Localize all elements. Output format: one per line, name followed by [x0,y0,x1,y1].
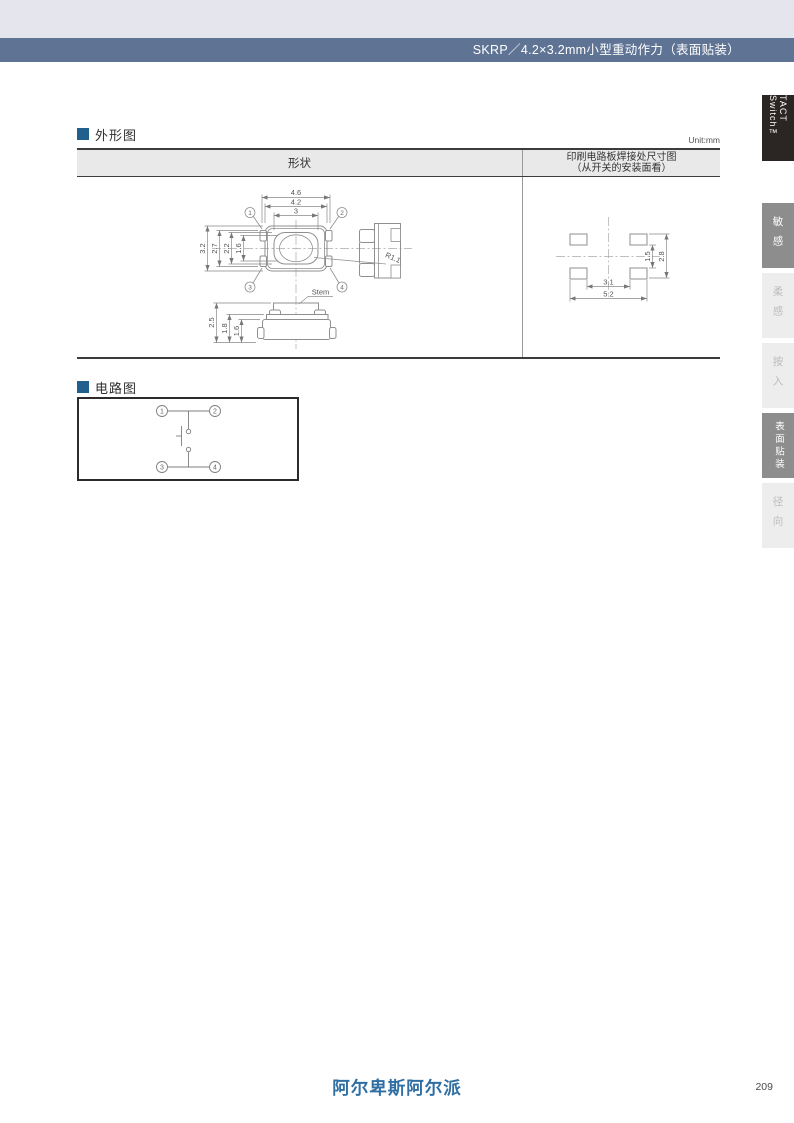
circuit-terminal-2: 2 [213,409,217,416]
terminal-pad [326,231,333,242]
side-terminal [360,230,375,243]
dim-label-16: 1.6 [234,243,243,253]
side-tab-soft: 柔感 [762,273,794,338]
circuit-box: 1 2 3 4 [77,397,299,481]
front-lead [258,328,265,339]
front-view-drawing [258,296,337,349]
col-header-pcb-line2: （从开关的安装面看） [572,163,672,175]
side-tab-label: 表面贴装 [771,421,785,471]
dim-label-27: 2.7 [210,243,219,253]
terminal-number-2: 2 [340,210,344,217]
dim-label-3: 3 [294,207,298,216]
side-tab-label: 径向 [771,496,786,535]
side-notch [391,265,401,278]
dim-label-radius: R1.1 [384,250,402,265]
dim-label-28: 2.8 [657,251,666,261]
pcb-pad [630,234,647,245]
dim-label-16b: 1.6 [232,326,241,336]
dim-label-25: 2.5 [207,317,216,327]
side-view-drawing [360,224,401,279]
side-tab-sensitive: 敏感 [762,203,794,268]
col-header-shape: 形状 [77,150,522,176]
footer-logo: 阿尔卑斯阿尔派 [0,1075,794,1100]
dim-label-31: 3.1 [603,278,613,287]
page-number: 209 [755,1081,773,1093]
unit-label: Unit:mm [77,135,720,145]
outline-drawing-svg: R1.1 4.6 4.2 3 [77,177,720,357]
stem-label: Stem [312,288,330,297]
col-header-pcb-line1: 印刷电路板焊接处尺寸图 [567,152,677,164]
circuit-terminal-1: 1 [160,409,164,416]
table-body-row: R1.1 4.6 4.2 3 [77,177,720,357]
pcb-pad [630,268,647,279]
datasheet-page: SKRP／4.2×3.2mm小型重动作力（表面贴装） TACT Switch™ … [0,0,794,1123]
contact-point [186,429,190,433]
dim-label-52: 5.2 [603,290,613,299]
side-tab-push: 按入 [762,343,794,408]
terminal-pad [326,256,333,267]
dim-label-15: 1.5 [643,251,652,261]
contact-point [186,447,190,451]
side-terminal [360,264,375,277]
circuit-section-title: 电路图 [95,378,137,397]
front-body [263,320,331,340]
top-strip [0,0,794,38]
terminal-number-3: 3 [248,285,252,292]
terminal-number-4: 4 [340,285,344,292]
page-title: SKRP／4.2×3.2mm小型重动作力（表面贴装） [473,43,740,57]
tab-tact-switch: TACT Switch™ [762,95,794,161]
circuit-section-header: 电路图 [77,380,137,394]
side-notch [391,229,401,242]
circuit-terminal-3: 3 [160,465,164,472]
terminal-number-1: 1 [248,210,252,217]
top-view-drawing [212,220,412,293]
outline-table: 形状 印刷电路板焊接处尺寸图 （从开关的安装面看） [77,148,720,359]
dim-label-46: 4.6 [291,188,301,197]
tab-tact-switch-label: TACT Switch™ [768,95,788,161]
side-tab-label: 按入 [771,356,786,395]
col-header-pcb: 印刷电路板焊接处尺寸图 （从开关的安装面看） [523,150,720,176]
title-bar: SKRP／4.2×3.2mm小型重动作力（表面贴装） [0,38,794,62]
side-tab-label: 敏感 [771,216,786,255]
table-header-row: 形状 印刷电路板焊接处尺寸图 （从开关的安装面看） [77,150,720,177]
section-marker-icon [77,381,89,393]
dim-label-42: 4.2 [291,198,301,207]
front-lead [330,328,337,339]
side-tab-label: 柔感 [771,286,786,325]
circuit-wires [157,406,221,473]
pcb-pad [570,268,587,279]
side-tab-smd: 表面贴装 [762,413,794,478]
front-flange [267,315,329,320]
circuit-terminal-4: 4 [213,465,217,472]
dim-label-18: 1.8 [220,323,229,333]
dim-label-22: 2.2 [222,243,231,253]
pcb-pad [570,234,587,245]
dim-label-32: 3.2 [198,243,207,253]
side-tab-radial: 径向 [762,483,794,548]
circuit-diagram-svg: 1 2 3 4 [79,399,297,479]
